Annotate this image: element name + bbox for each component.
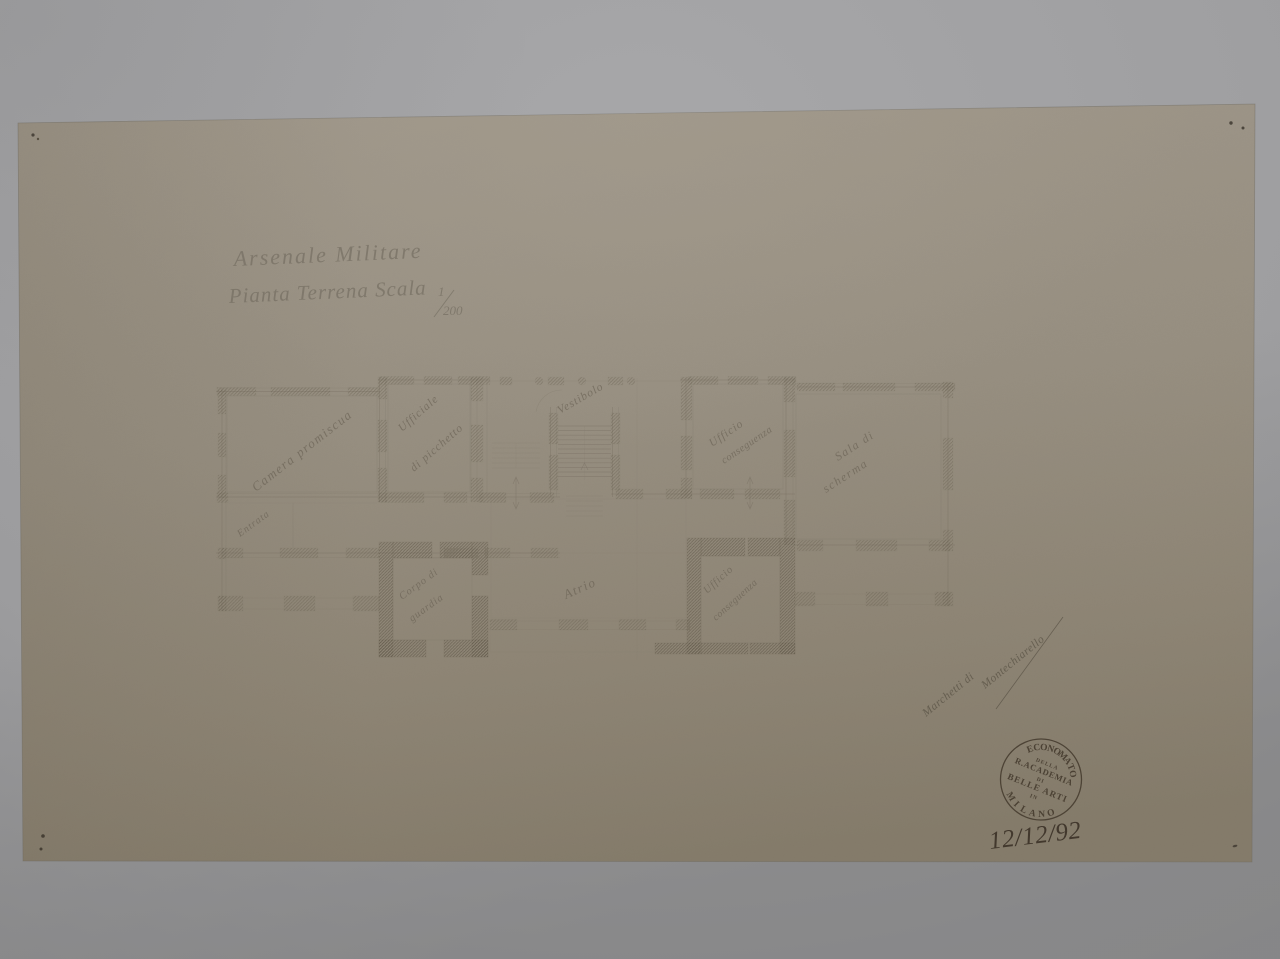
svg-text:N: N xyxy=(1038,810,1045,820)
svg-text:200: 200 xyxy=(443,303,463,318)
svg-text:1: 1 xyxy=(438,284,445,299)
